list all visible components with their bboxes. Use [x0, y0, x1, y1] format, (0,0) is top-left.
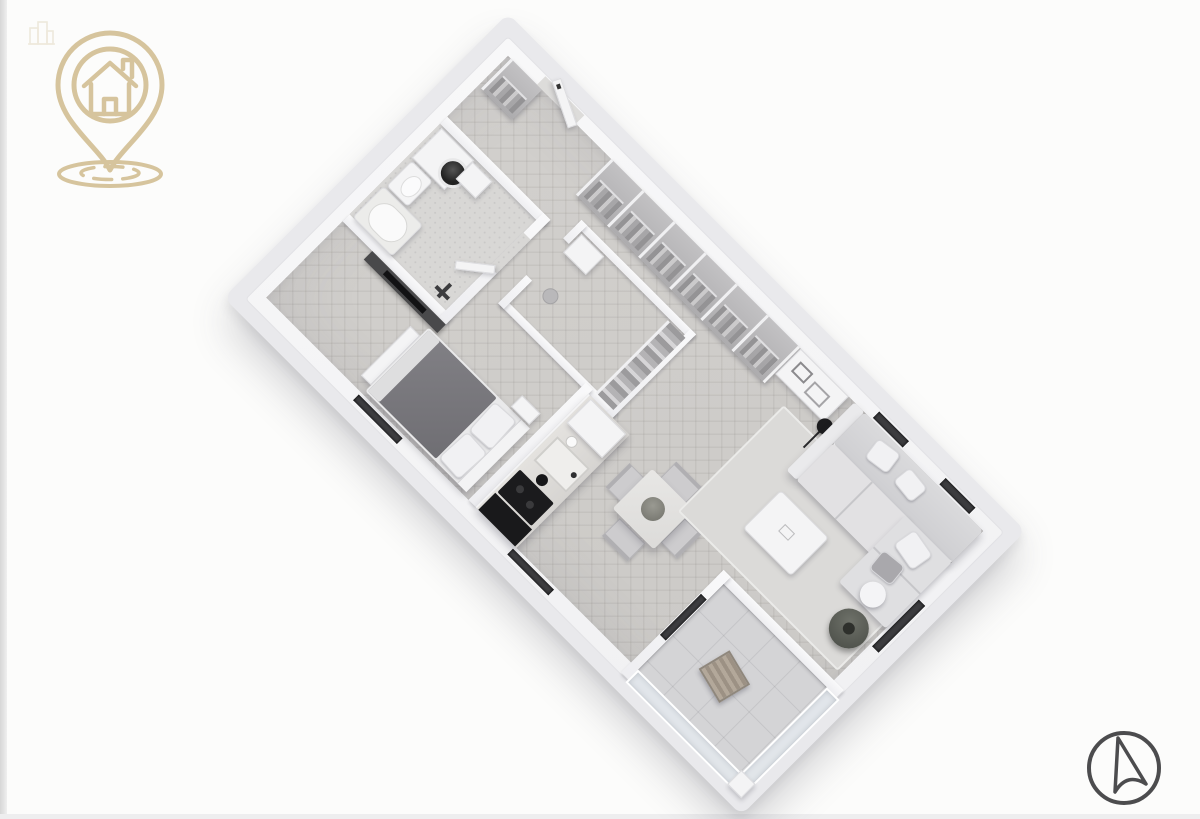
- entry-shoe-cabinet: [481, 59, 542, 120]
- coffee-table-tray: [778, 524, 795, 541]
- house-location-pin-logo: [35, 24, 185, 192]
- faucet: [570, 471, 578, 479]
- closet-shelves: [596, 320, 686, 410]
- burner-1: [514, 484, 525, 495]
- compass-north-arrow: [1082, 726, 1166, 810]
- table-plant: [636, 492, 670, 526]
- sofa-seat-seam: [835, 481, 873, 519]
- plant-pot: [840, 620, 857, 637]
- door-handle: [556, 84, 561, 90]
- closet-wall-left-b: [498, 275, 532, 309]
- burner-2: [524, 499, 535, 510]
- desk-frame-decor: [791, 361, 814, 384]
- closet-stool: [539, 285, 562, 308]
- floor-plan: [246, 36, 1003, 793]
- page-left-edge: [0, 0, 7, 819]
- page-bottom-edge: [0, 814, 1200, 819]
- shoe-cubby: [481, 59, 542, 120]
- listing-image: [0, 0, 1200, 819]
- desk-tray: [804, 381, 831, 408]
